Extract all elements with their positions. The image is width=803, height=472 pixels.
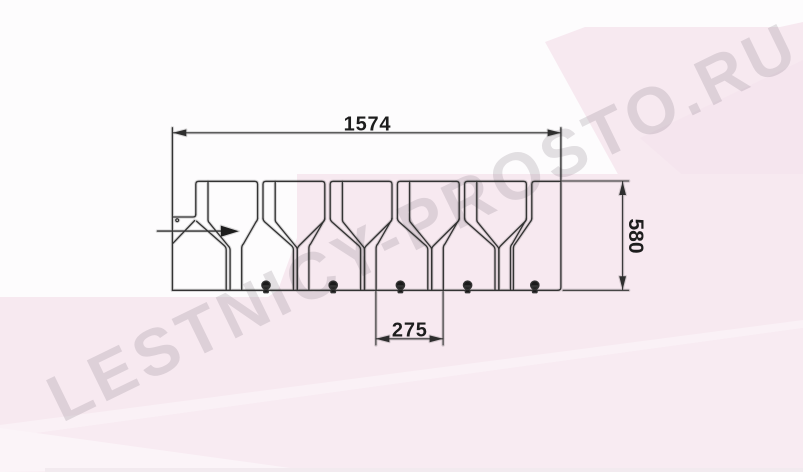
svg-text:1574: 1574 bbox=[344, 114, 392, 136]
svg-text:275: 275 bbox=[392, 320, 428, 342]
svg-text:580: 580 bbox=[624, 218, 647, 253]
